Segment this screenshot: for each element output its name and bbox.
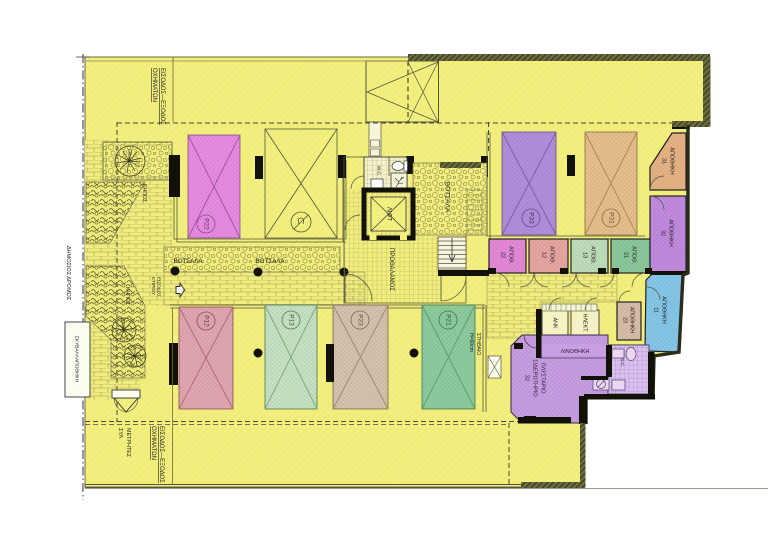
svg-text:ΟΧΗΜΑΤΩΝ: ΟΧΗΜΑΤΩΝ <box>151 68 157 102</box>
svg-text:31: 31 <box>661 158 667 164</box>
svg-text:ΕΙΣΟΔΟΣ—ΕΞΟΔΟΣ: ΕΙΣΟΔΟΣ—ΕΞΟΔΟΣ <box>158 426 164 483</box>
svg-text:23: 23 <box>622 317 628 323</box>
svg-text:ΜΕΤΡΗΤΕΣ: ΜΕΤΡΗΤΕΣ <box>125 428 131 458</box>
svg-text:P31: P31 <box>607 212 614 224</box>
svg-text:32: 32 <box>524 375 530 381</box>
svg-text:ΔΗΜΟΣΙΟΣ ΔΡΟΜΟΣ: ΔΗΜΟΣΙΟΣ ΔΡΟΜΟΣ <box>65 246 71 301</box>
svg-text:13: 13 <box>582 252 588 258</box>
svg-text:P13: P13 <box>287 314 294 326</box>
svg-text:P12: P12 <box>202 315 209 327</box>
svg-text:12: 12 <box>541 252 547 258</box>
svg-text:ΚΗΠΟΣ: ΚΗΠΟΣ <box>141 184 147 202</box>
svg-text:ΒΟΤΣΑΛΑ: ΒΟΤΣΑΛΑ <box>256 258 286 265</box>
svg-text:ΕΙΣΟΔΟΣ—ΕΞΟΔΟΣ: ΕΙΣΟΔΟΣ—ΕΞΟΔΟΣ <box>159 68 165 125</box>
svg-text:P21: P21 <box>444 314 451 326</box>
svg-text:ΛΙΦΤ: ΛΙΦΤ <box>385 207 391 221</box>
svg-text:ΣΙΔΕΡΩΤΗΡΙΟ: ΣΙΔΕΡΩΤΗΡΙΟ <box>532 359 538 397</box>
svg-text:ΑΠΟΘ.: ΑΠΟΘ. <box>508 246 514 264</box>
svg-text:ΕΙΣΟΔΟΣ: ΕΙΣΟΔΟΣ <box>157 277 162 297</box>
svg-text:ΑΠΟΘ.: ΑΠΟΘ. <box>549 246 555 264</box>
svg-text:ΗΛΕΚΤ.: ΗΛΕΚΤ. <box>582 314 588 333</box>
svg-text:P23: P23 <box>356 314 363 326</box>
svg-text:W.C.: W.C. <box>620 357 625 367</box>
svg-text:ΑΠΟΘ.: ΑΠΟΘ. <box>590 246 596 264</box>
svg-text:ΑΝΚ: ΑΝΚ <box>552 317 558 328</box>
svg-text:ΑΠΟΘΗΚΗ: ΑΠΟΘΗΚΗ <box>669 147 675 174</box>
svg-text:ΣΤΗΘΑΙΟ: ΣΤΗΘΑΙΟ <box>475 333 481 355</box>
svg-text:ΑΠΟΘΗΚΗ: ΑΠΟΘΗΚΗ <box>661 296 667 323</box>
svg-text:22: 22 <box>500 252 506 258</box>
svg-text:P33: P33 <box>527 212 534 224</box>
svg-text:21: 21 <box>623 252 629 258</box>
svg-text:ΟΧΗΜΑΤΩΝ: ΟΧΗΜΑΤΩΝ <box>150 426 156 460</box>
svg-text:11: 11 <box>653 307 659 313</box>
svg-text:ΑΠΟΘΗΚΗ: ΑΠΟΘΗΚΗ <box>668 219 674 246</box>
svg-text:ΑΠΟΘ.: ΑΠΟΘ. <box>631 246 637 264</box>
svg-text:ΒΟΤΣΑΛΑ: ΒΟΤΣΑΛΑ <box>174 258 204 265</box>
svg-text:ΑΠΟΘΗΚΗ: ΑΠΟΘΗΚΗ <box>629 307 635 333</box>
svg-text:ΒΟΤΣΑΛΑ: ΒΟΤΣΑΛΑ <box>443 182 450 213</box>
svg-text:ΠΛΥΣΤΑΡΙΟ: ΠΛΥΣΤΑΡΙΟ <box>540 363 546 395</box>
svg-text:ΚΗΠΟΣ: ΚΗΠΟΣ <box>124 287 130 305</box>
svg-text:Η=60cm: Η=60cm <box>468 333 474 352</box>
svg-text:W.C.: W.C. <box>376 166 382 176</box>
svg-text:ΣΥΛ: ΣΥΛ <box>117 428 123 439</box>
svg-text:P22: P22 <box>202 218 209 230</box>
svg-text:ΣΚΥΒΑΛΛΑΠΟΘΗΚΗ: ΣΚΥΒΑΛΛΑΠΟΘΗΚΗ <box>74 336 80 383</box>
svg-text:ΠΡΟΘΑΛΑΜΟΣ: ΠΡΟΘΑΛΑΜΟΣ <box>388 248 394 291</box>
svg-text:ΚΤΙΡΙΟΥ: ΚΤΙΡΙΟΥ <box>151 277 156 295</box>
svg-text:32: 32 <box>660 230 666 236</box>
svg-text:ΛΙΝΟΘΗΚΗ: ΛΙΝΟΘΗΚΗ <box>561 349 590 355</box>
